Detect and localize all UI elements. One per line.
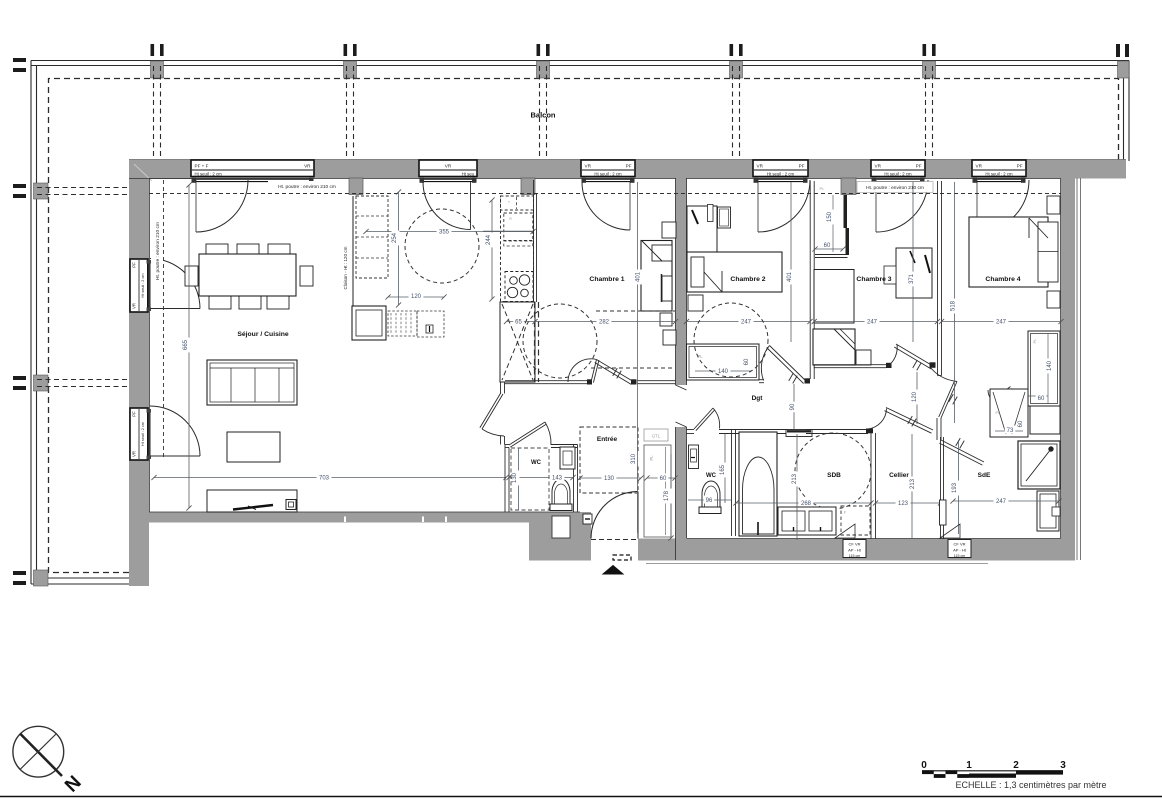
svg-text:Ht. poutre : environ 210 cm: Ht. poutre : environ 210 cm xyxy=(278,184,336,190)
svg-text:VR: VR xyxy=(132,451,137,457)
svg-text:ECHELLE : 1,3 centimètres par: ECHELLE : 1,3 centimètres par mètre xyxy=(955,780,1106,790)
svg-text:178: 178 xyxy=(664,490,670,501)
svg-text:PF: PF xyxy=(1017,164,1023,169)
svg-text:Ht seuil : 2 cm: Ht seuil : 2 cm xyxy=(594,171,622,176)
svg-text:VR: VR xyxy=(585,164,592,169)
svg-text:247: 247 xyxy=(741,320,752,326)
svg-text:Balcon: Balcon xyxy=(530,111,555,120)
svg-text:AP - Ht: AP - Ht xyxy=(953,548,967,553)
svg-text:Ht seuil : 2 cm: Ht seuil : 2 cm xyxy=(767,171,795,176)
svg-text:CF VR: CF VR xyxy=(849,542,861,547)
svg-text:Ht seu: Ht seu xyxy=(462,171,475,176)
svg-text:Dgt: Dgt xyxy=(752,395,764,402)
svg-text:247: 247 xyxy=(996,499,1007,505)
svg-text:213: 213 xyxy=(792,473,798,484)
svg-text:Ht. poutre : environ 210 cm: Ht. poutre : environ 210 cm xyxy=(866,185,924,191)
svg-text:140: 140 xyxy=(1047,360,1053,371)
svg-text:PL: PL xyxy=(649,455,654,461)
svg-text:PF: PF xyxy=(132,411,137,417)
svg-text:Ht seuil : 2 cm: Ht seuil : 2 cm xyxy=(884,171,912,176)
svg-text:GTL: GTL xyxy=(652,434,661,439)
svg-text:244: 244 xyxy=(486,234,492,245)
svg-text:PF: PF xyxy=(916,164,922,169)
svg-text:140: 140 xyxy=(718,369,729,375)
svg-text:Séjour / Cuisine: Séjour / Cuisine xyxy=(237,331,289,338)
svg-text:R: R xyxy=(509,217,512,221)
svg-text:123: 123 xyxy=(898,501,909,507)
svg-text:115 cm: 115 cm xyxy=(849,554,861,558)
svg-text:120: 120 xyxy=(912,391,918,402)
svg-text:Cellier: Cellier xyxy=(889,472,909,479)
svg-text:268: 268 xyxy=(801,501,812,507)
svg-text:371: 371 xyxy=(909,273,915,284)
svg-text:73: 73 xyxy=(1007,428,1014,434)
svg-text:PF: PF xyxy=(799,164,805,169)
svg-text:Ht seuil : 2 cm: Ht seuil : 2 cm xyxy=(141,273,145,297)
svg-text:Chambre 2: Chambre 2 xyxy=(730,276,765,283)
svg-text:0: 0 xyxy=(921,760,927,771)
svg-text:VR: VR xyxy=(132,303,137,309)
svg-text:665: 665 xyxy=(183,339,189,350)
svg-text:SDB: SDB xyxy=(827,472,841,479)
svg-text:Chambre 1: Chambre 1 xyxy=(589,276,624,283)
svg-text:60: 60 xyxy=(824,243,831,249)
svg-text:401: 401 xyxy=(636,271,642,282)
svg-text:PL: PL xyxy=(996,410,1002,415)
svg-text:CF VR: CF VR xyxy=(954,542,966,547)
svg-text:96: 96 xyxy=(706,498,713,504)
svg-text:Cloison - Ht : 120 cm: Cloison - Ht : 120 cm xyxy=(343,246,348,289)
svg-text:247: 247 xyxy=(867,320,878,326)
svg-text:60: 60 xyxy=(1038,396,1045,402)
svg-text:120: 120 xyxy=(411,294,422,300)
svg-text:VR: VR xyxy=(976,164,983,169)
svg-text:213: 213 xyxy=(910,478,916,489)
svg-text:165: 165 xyxy=(720,464,726,475)
svg-text:Chambre 3: Chambre 3 xyxy=(856,276,891,283)
svg-text:VR: VR xyxy=(875,164,882,169)
svg-text:WC: WC xyxy=(706,473,717,479)
svg-text:VR: VR xyxy=(304,164,311,169)
svg-text:PL: PL xyxy=(820,186,826,191)
svg-text:60: 60 xyxy=(660,476,667,482)
svg-text:130: 130 xyxy=(512,472,518,483)
svg-text:518: 518 xyxy=(951,300,957,311)
svg-text:PF + F: PF + F xyxy=(195,164,209,169)
svg-text:PF: PF xyxy=(626,164,632,169)
svg-text:247: 247 xyxy=(996,320,1007,326)
svg-text:65: 65 xyxy=(515,320,522,326)
svg-text:Chambre 4: Chambre 4 xyxy=(985,276,1020,283)
svg-text:401: 401 xyxy=(787,271,793,282)
svg-text:Ht seuil : 2 cm: Ht seuil : 2 cm xyxy=(141,422,145,446)
svg-text:Entrée: Entrée xyxy=(597,436,618,443)
svg-text:355: 355 xyxy=(439,230,450,236)
svg-text:2: 2 xyxy=(1013,760,1019,771)
svg-text:AP - Ht: AP - Ht xyxy=(848,548,862,553)
svg-text:F: F xyxy=(844,510,847,515)
svg-text:115 cm: 115 cm xyxy=(954,554,966,558)
svg-text:60: 60 xyxy=(1018,420,1024,427)
svg-text:143: 143 xyxy=(552,476,563,482)
svg-text:3: 3 xyxy=(1060,760,1066,771)
svg-text:150: 150 xyxy=(827,211,833,222)
svg-text:Ht seuil : 2 cm: Ht seuil : 2 cm xyxy=(985,171,1013,176)
svg-text:193: 193 xyxy=(952,482,958,493)
svg-text:254: 254 xyxy=(392,232,398,243)
svg-text:703: 703 xyxy=(319,476,330,482)
svg-text:VR: VR xyxy=(445,164,452,169)
svg-text:VR: VR xyxy=(757,164,764,169)
svg-text:PF: PF xyxy=(132,262,137,268)
svg-text:Ht seuil : 2 cm: Ht seuil : 2 cm xyxy=(195,171,223,176)
svg-text:130: 130 xyxy=(604,476,615,482)
svg-text:1: 1 xyxy=(966,760,972,771)
svg-text:60: 60 xyxy=(744,358,750,365)
svg-text:Ht. poutre : environ 210 cm: Ht. poutre : environ 210 cm xyxy=(155,222,161,280)
svg-text:282: 282 xyxy=(599,320,610,326)
svg-text:90: 90 xyxy=(790,403,796,410)
svg-text:SdE: SdE xyxy=(978,472,991,479)
svg-text:WC: WC xyxy=(531,460,542,466)
svg-text:310: 310 xyxy=(631,453,637,464)
svg-text:PL: PL xyxy=(1032,338,1037,344)
